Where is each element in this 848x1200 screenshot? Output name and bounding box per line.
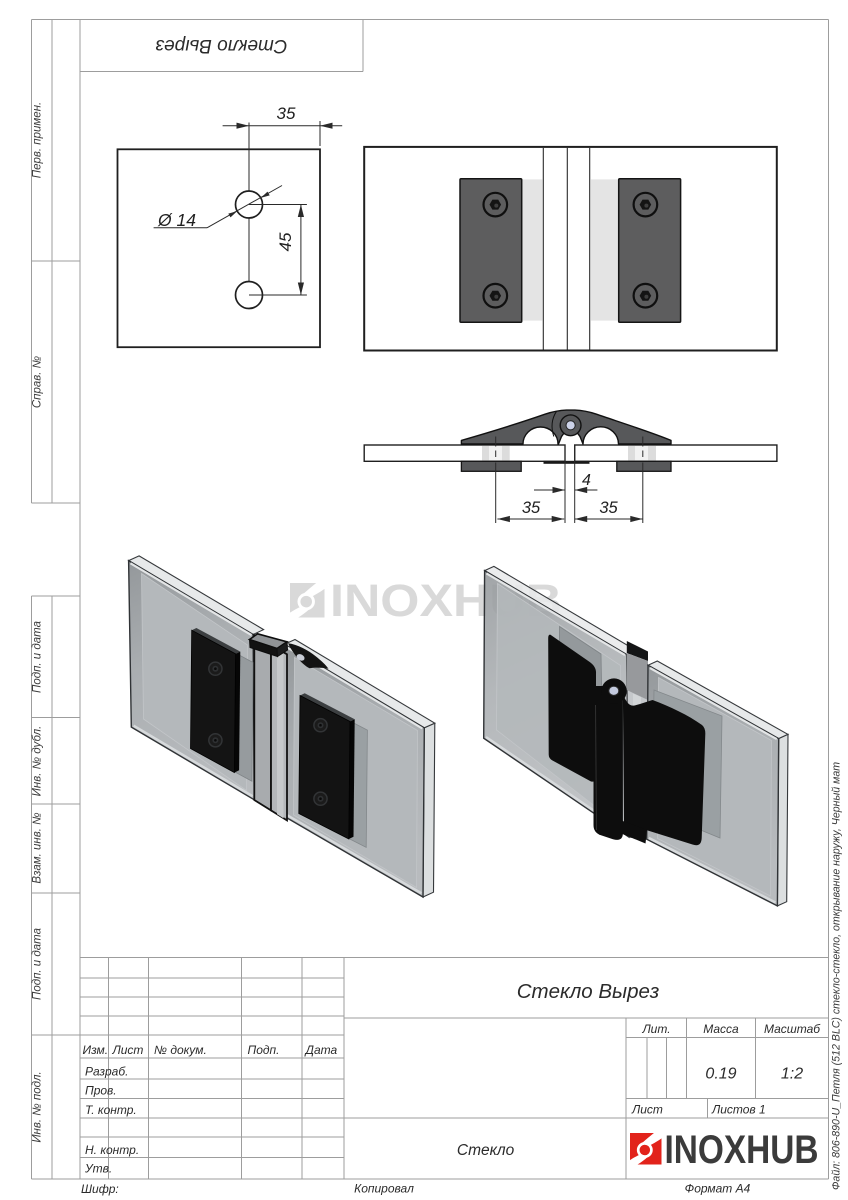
svg-text:Утв.: Утв. (84, 1162, 112, 1176)
svg-text:Инв. № дубл.: Инв. № дубл. (32, 726, 44, 797)
svg-text:Масса: Масса (703, 1022, 739, 1036)
svg-text:35: 35 (599, 499, 618, 517)
svg-text:Справ. №: Справ. № (32, 355, 44, 408)
svg-text:Ø 14: Ø 14 (157, 210, 196, 230)
svg-text:Стекло Вырез: Стекло Вырез (517, 980, 659, 1003)
svg-text:Подп. и дата: Подп. и дата (32, 928, 44, 1000)
svg-text:Пров.: Пров. (85, 1084, 117, 1098)
svg-text:Подп.: Подп. (248, 1043, 280, 1057)
svg-text:35: 35 (522, 499, 541, 517)
svg-text:Файл: 806-890-U_Петля (512 BLC: Файл: 806-890-U_Петля (512 BLC) стекло-с… (831, 762, 843, 1190)
svg-text:Формат А4: Формат А4 (685, 1182, 751, 1196)
svg-text:Стекло Вырез: Стекло Вырез (155, 35, 287, 56)
svg-text:Шифр:: Шифр: (81, 1182, 119, 1196)
svg-text:Взам. инв. №: Взам. инв. № (32, 812, 44, 884)
svg-text:Дата: Дата (304, 1043, 338, 1057)
svg-text:Изм.: Изм. (83, 1043, 109, 1057)
svg-text:Копировал: Копировал (354, 1182, 414, 1196)
svg-text:45: 45 (276, 232, 295, 251)
svg-text:№ докум.: № докум. (154, 1043, 207, 1057)
svg-text:Листов 1: Листов 1 (711, 1103, 766, 1117)
svg-text:0.19: 0.19 (705, 1066, 736, 1083)
svg-text:Лист: Лист (112, 1043, 144, 1057)
svg-text:Н. контр.: Н. контр. (85, 1143, 139, 1157)
svg-text:35: 35 (277, 104, 296, 123)
svg-text:Лит.: Лит. (641, 1022, 670, 1036)
svg-text:Лист: Лист (631, 1103, 663, 1117)
svg-text:Перв. примен.: Перв. примен. (32, 102, 44, 178)
svg-text:Т. контр.: Т. контр. (85, 1103, 137, 1117)
svg-text:Масштаб: Масштаб (764, 1022, 821, 1036)
svg-text:Стекло: Стекло (457, 1142, 515, 1159)
svg-text:4: 4 (582, 472, 591, 489)
svg-text:Подп. и дата: Подп. и дата (32, 621, 44, 693)
svg-text:Инв. № подл.: Инв. № подл. (32, 1071, 44, 1142)
svg-text:1:2: 1:2 (781, 1066, 803, 1083)
svg-text:Разраб.: Разраб. (85, 1064, 128, 1078)
svg-text:INOXHUB: INOXHUB (665, 1128, 819, 1172)
